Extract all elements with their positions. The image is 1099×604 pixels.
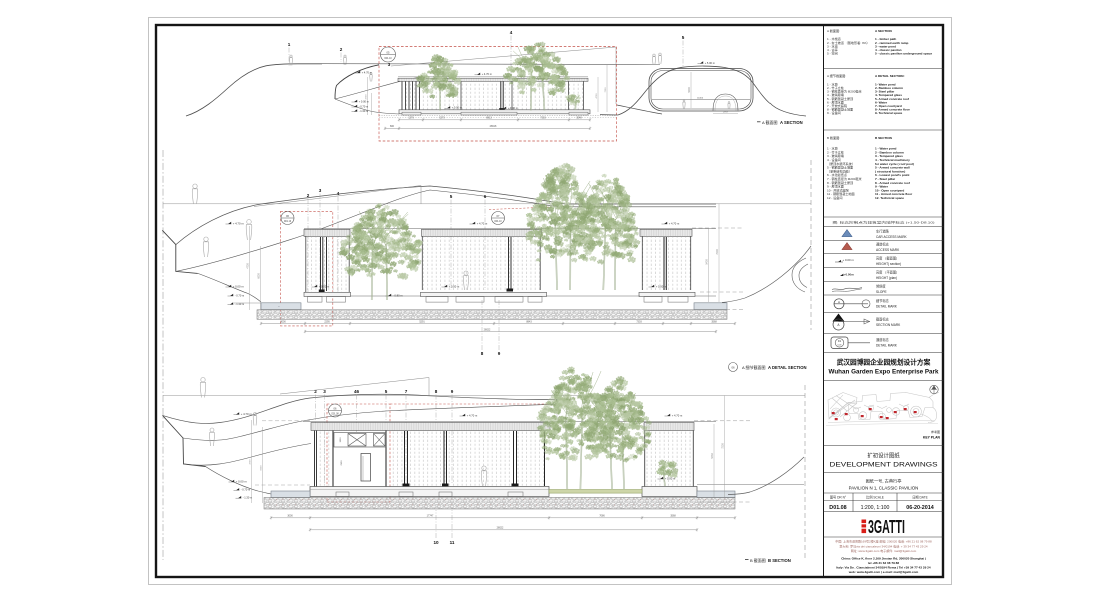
svg-text:China: Office K, floor 2,169 J: China: Office K, floor 2,169 Jinxian Rd,… <box>841 557 926 561</box>
svg-text:1800: 1800 <box>340 437 342 443</box>
svg-text:A DETAIL SECTION:: A DETAIL SECTION: <box>875 74 905 78</box>
svg-text:+ 4.70 m: + 4.70 m <box>233 221 245 225</box>
svg-text:高度 （平面图）: 高度 （平面图） <box>876 270 899 275</box>
svg-text:A SECTION: A SECTION <box>875 29 892 33</box>
svg-text:DEVELOPMENT DRAWINGS: DEVELOPMENT DRAWINGS <box>830 462 938 469</box>
svg-text:+ 0.00 m: + 0.00 m <box>843 258 855 262</box>
svg-text:2: 2 <box>307 193 310 198</box>
svg-text:网址: www.3gatti.com 电子邮件: mail@: 网址: www.3gatti.com 电子邮件: mail@3gatti.com <box>851 548 917 553</box>
svg-text:A 细节截面图: A 细节截面图 <box>742 364 766 370</box>
svg-text:8: 8 <box>435 389 438 394</box>
svg-text:- 0.70 m: - 0.70 m <box>235 293 245 297</box>
svg-text:7303: 7303 <box>540 117 546 120</box>
svg-text:CAR ACCESS MARK: CAR ACCESS MARK <box>876 235 908 239</box>
svg-text:- 1.30 m: - 1.30 m <box>243 496 253 500</box>
svg-text:5: 5 <box>385 389 388 394</box>
svg-text:28022: 28022 <box>497 527 504 530</box>
svg-text:Wuhan Garden Expo Enterprise P: Wuhan Garden Expo Enterprise Park <box>829 370 940 376</box>
svg-text:7200: 7200 <box>716 249 719 255</box>
svg-text:日期 DATE: 日期 DATE <box>912 494 928 499</box>
svg-text:3000: 3000 <box>280 320 286 323</box>
svg-text:A: A <box>838 300 840 304</box>
svg-text:+ 0.00 m: + 0.00 m <box>319 284 330 288</box>
svg-text:- 0.80 m: - 0.80 m <box>393 293 404 297</box>
svg-text:B 截面图: B 截面图 <box>750 557 766 563</box>
svg-text:+ 0.00 m: + 0.00 m <box>665 476 676 480</box>
svg-text:- 0.70 m: - 0.70 m <box>241 488 251 492</box>
svg-text:Italy: Via De_ Ciancialeoni 34: Italy: Via De_ Ciancialeoni 34/0194 Roma… <box>836 566 930 570</box>
svg-text:通道标志: 通道标志 <box>876 337 890 342</box>
svg-text:SECTION MARK: SECTION MARK <box>876 323 901 327</box>
svg-text:+ 4.70 m: + 4.70 m <box>669 221 680 225</box>
svg-text:4: 4 <box>337 191 340 196</box>
svg-text:HEIGHT (plan): HEIGHT (plan) <box>876 276 897 280</box>
svg-text:8: 8 <box>481 351 484 356</box>
svg-text:tel +86 21 62 08 79 88: tel +86 21 62 08 79 88 <box>868 561 900 565</box>
svg-text:高度 （截面图）: 高度 （截面图） <box>876 256 899 261</box>
svg-text:3000: 3000 <box>287 515 293 518</box>
svg-text:5: 5 <box>682 35 685 40</box>
svg-text:1276: 1276 <box>408 117 414 120</box>
svg-text:2: 2 <box>340 47 343 52</box>
svg-text:12- Technical space: 12- Technical space <box>875 196 904 200</box>
svg-text:4700: 4700 <box>596 93 598 99</box>
svg-text:14400: 14400 <box>697 97 704 99</box>
svg-text:+ 4.70 m: + 4.70 m <box>482 72 492 76</box>
svg-text:D01.10: D01.10 <box>494 221 502 223</box>
svg-text:ACCESS MARK: ACCESS MARK <box>876 248 900 252</box>
svg-text:7: 7 <box>405 389 408 394</box>
svg-text:PAVILION N 1, CLASSIC PAVILION: PAVILION N 1, CLASSIC PAVILION <box>849 486 919 491</box>
svg-text:- 0.70 m: - 0.70 m <box>359 104 369 108</box>
svg-text:KEY PLAN: KEY PLAN <box>923 436 941 440</box>
svg-text:武汉园博园企业园规划设计方案: 武汉园博园企业园规划设计方案 <box>837 358 931 367</box>
svg-text:9: 9 <box>498 351 501 356</box>
svg-text:截面标志: 截面标志 <box>876 317 890 322</box>
svg-text:DETAIL MARK: DETAIL MARK <box>876 343 898 347</box>
svg-text:图: 标高控制点为建筑室内地坪标高 (+1.50-D8.10: 图: 标高控制点为建筑室内地坪标高 (+1.50-D8.10) <box>833 220 935 225</box>
svg-text:3548: 3548 <box>576 117 582 120</box>
svg-text:+ 4.70 m: + 4.70 m <box>672 413 683 417</box>
svg-text:~: ~ <box>278 305 280 309</box>
svg-text:DETAIL MARK: DETAIL MARK <box>876 304 898 308</box>
svg-text:8843: 8843 <box>526 320 532 323</box>
svg-text:7086: 7086 <box>599 515 605 518</box>
svg-text:3568: 3568 <box>670 515 676 518</box>
svg-text:4700: 4700 <box>365 94 367 100</box>
svg-text:+0.00m: +0.00m <box>844 272 854 276</box>
svg-text:2: 2 <box>314 389 317 394</box>
svg-text:web: www.3gatti.com | e-mail:: web: www.3gatti.com | e-mail: mail@3gatt… <box>848 570 919 574</box>
svg-text:+ 5.00 m: + 5.00 m <box>705 61 715 65</box>
svg-text:9 - 设备间: 9 - 设备间 <box>827 110 841 115</box>
svg-text:+ 0.00 m: + 0.00 m <box>452 106 462 110</box>
svg-text:5430: 5430 <box>711 453 714 459</box>
svg-text:9- Technical space: 9- Technical space <box>875 111 903 115</box>
svg-text:8813: 8813 <box>486 117 492 120</box>
svg-text:9: 9 <box>451 389 454 394</box>
svg-text:4700: 4700 <box>249 459 251 465</box>
svg-text:06-20-2014: 06-20-2014 <box>906 505 934 511</box>
svg-text:6000: 6000 <box>257 273 260 279</box>
svg-text:3GATTI: 3GATTI <box>868 517 905 537</box>
svg-text:图纸一号, 古典行亭: 图纸一号, 古典行亭 <box>866 478 902 485</box>
svg-text:+ 0.00 m: + 0.00 m <box>449 284 460 288</box>
svg-text:2767: 2767 <box>723 112 729 114</box>
svg-text:+ 0.00 m: + 0.00 m <box>233 284 245 288</box>
svg-text:D01.08: D01.08 <box>829 505 846 511</box>
svg-text:B SECTION: B SECTION <box>875 136 893 140</box>
svg-text:3: 3 <box>319 188 322 193</box>
svg-text:B 截面图:: B 截面图: <box>827 135 840 140</box>
svg-text:图号 DR N°: 图号 DR N° <box>830 494 847 499</box>
svg-text:11: 11 <box>450 540 455 545</box>
svg-text:5: 5 <box>450 194 453 199</box>
svg-text:5 - classic pavilion undergrou: 5 - classic pavilion underground space <box>875 52 932 56</box>
svg-text:28618: 28618 <box>490 125 497 128</box>
svg-text:06: 06 <box>731 366 735 370</box>
svg-text:1:200, 1:100: 1:200, 1:100 <box>861 505 890 511</box>
svg-text:+ 0.00 m: + 0.00 m <box>236 479 248 483</box>
svg-text:5 - 空间: 5 - 空间 <box>827 51 838 56</box>
svg-text:比例 SCALE: 比例 SCALE <box>866 494 884 499</box>
svg-text:7200: 7200 <box>721 443 724 449</box>
svg-text:倾斜度: 倾斜度 <box>876 284 886 289</box>
svg-text:+ 4.70 m: + 4.70 m <box>477 221 488 225</box>
svg-text:中国: 上海市进贤路169号2楼K座 邮编: 200020: 中国: 上海市进贤路169号2楼K座 邮编: 200020 电话: +86 21… <box>835 539 932 544</box>
svg-text:4: 4 <box>510 30 513 35</box>
svg-text:2295: 2295 <box>324 320 330 323</box>
svg-text:1: 1 <box>288 42 291 47</box>
svg-text:细节标志: 细节标志 <box>876 298 890 303</box>
svg-text:46: 46 <box>354 389 360 394</box>
svg-text:D01.08: D01.08 <box>331 414 339 416</box>
svg-text:D01.10: D01.10 <box>384 58 392 60</box>
svg-text:3: 3 <box>388 62 391 67</box>
svg-text:5400: 5400 <box>705 259 708 265</box>
svg-text:+ 4.70 m: + 4.70 m <box>362 70 372 74</box>
svg-text:+ 4.70 m: + 4.70 m <box>241 412 253 416</box>
svg-text:参考图: 参考图 <box>931 429 940 434</box>
svg-text:+ 0.00 m: + 0.00 m <box>359 99 369 103</box>
svg-text:A 截面图:: A 截面图: <box>827 28 840 33</box>
svg-text:B SECTION: B SECTION <box>768 558 791 563</box>
svg-text:6: 6 <box>484 194 487 199</box>
svg-text:车行道路: 车行道路 <box>876 229 890 234</box>
svg-text:SLOPE: SLOPE <box>876 290 887 294</box>
svg-text:12 - 设备间: 12 - 设备间 <box>827 195 842 200</box>
svg-text:A SECTION: A SECTION <box>780 120 803 125</box>
svg-text:- 1.30 m: - 1.30 m <box>359 109 369 113</box>
svg-text:5270: 5270 <box>439 117 445 120</box>
svg-text:28022: 28022 <box>484 328 491 331</box>
svg-text:D01.10: D01.10 <box>284 221 292 223</box>
svg-text:- 1.30 m: - 1.30 m <box>235 302 245 306</box>
svg-text:5291: 5291 <box>419 320 425 323</box>
svg-text:17747: 17747 <box>427 515 434 518</box>
svg-text:800: 800 <box>390 125 395 128</box>
svg-text:通道标志: 通道标志 <box>876 242 890 247</box>
svg-text:扩初设计图纸: 扩初设计图纸 <box>867 452 900 460</box>
svg-text:6000: 6000 <box>260 465 262 471</box>
svg-text:4700: 4700 <box>246 263 249 269</box>
svg-text:HEIGHT( section): HEIGHT( section) <box>876 262 901 266</box>
svg-text:A 截面图: A 截面图 <box>762 119 778 125</box>
svg-text:5000: 5000 <box>688 87 691 93</box>
svg-text:+ 0.00 m: + 0.00 m <box>508 106 518 110</box>
svg-text:10: 10 <box>433 540 439 545</box>
svg-text:3: 3 <box>323 389 326 394</box>
svg-text:+ 0.00 m: + 0.00 m <box>656 284 667 288</box>
svg-text:7303: 7303 <box>636 320 642 323</box>
svg-text:A 细节截面图:: A 细节截面图: <box>827 73 846 78</box>
svg-text:3568: 3568 <box>711 320 717 323</box>
svg-text:+ 4.70 m: + 4.70 m <box>467 413 478 417</box>
svg-text:A DETAIL SECTION: A DETAIL SECTION <box>768 365 807 370</box>
svg-text:7200: 7200 <box>605 87 607 93</box>
svg-text:意大利: 罗马via dei ciancaleoni 34/: 意大利: 罗马via dei ciancaleoni 34/0194 电话: +… <box>839 543 927 548</box>
svg-text:2950: 2950 <box>341 460 343 466</box>
